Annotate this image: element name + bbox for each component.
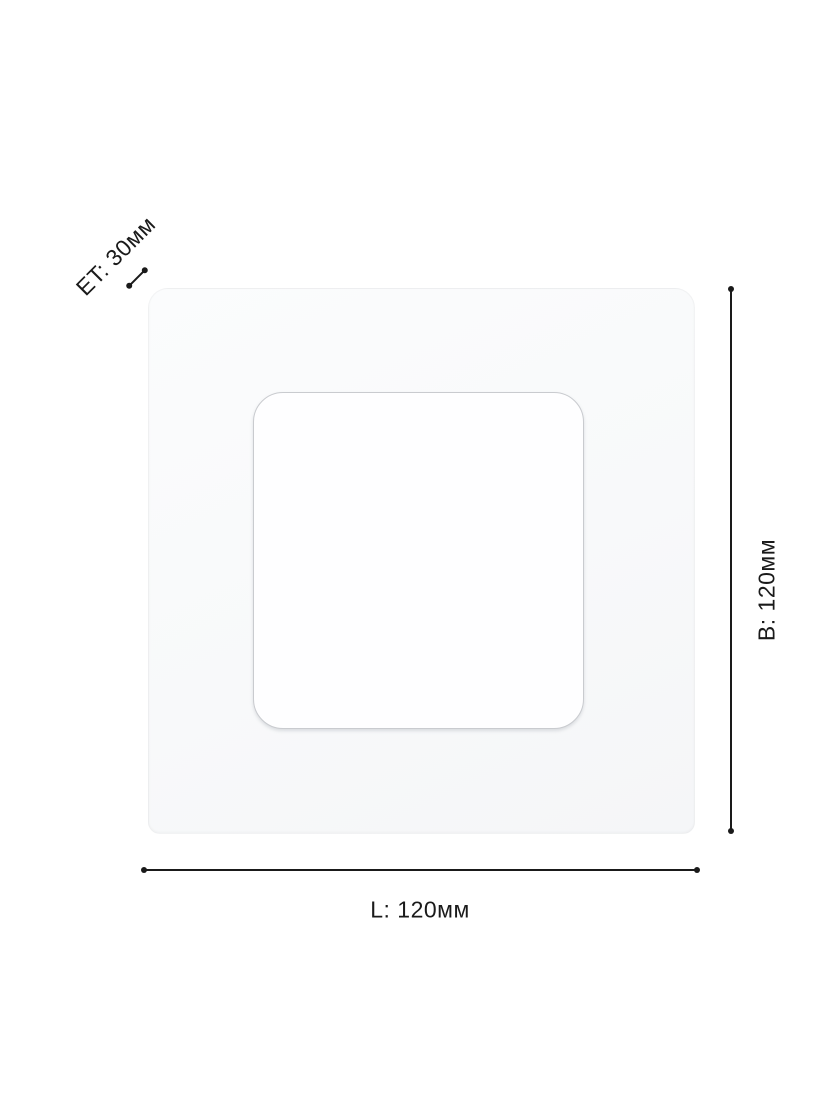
dimension-arrow-depth <box>129 270 146 287</box>
dimension-label-depth: ET: 30мм <box>71 211 161 301</box>
dimension-endpoint-dot <box>728 828 734 834</box>
dimension-line-height <box>730 289 732 831</box>
dimension-line-length <box>144 869 697 871</box>
dimension-endpoint-dot <box>728 286 734 292</box>
dimension-label-length: L: 120мм <box>370 897 470 924</box>
dimension-endpoint-dot <box>141 867 147 873</box>
dimension-label-height: B: 120мм <box>754 539 781 641</box>
product-dimension-diagram: L: 120мм B: 120мм ET: 30мм <box>0 0 840 1120</box>
dimension-endpoint-dot <box>694 867 700 873</box>
panel-inner-face <box>253 392 584 729</box>
